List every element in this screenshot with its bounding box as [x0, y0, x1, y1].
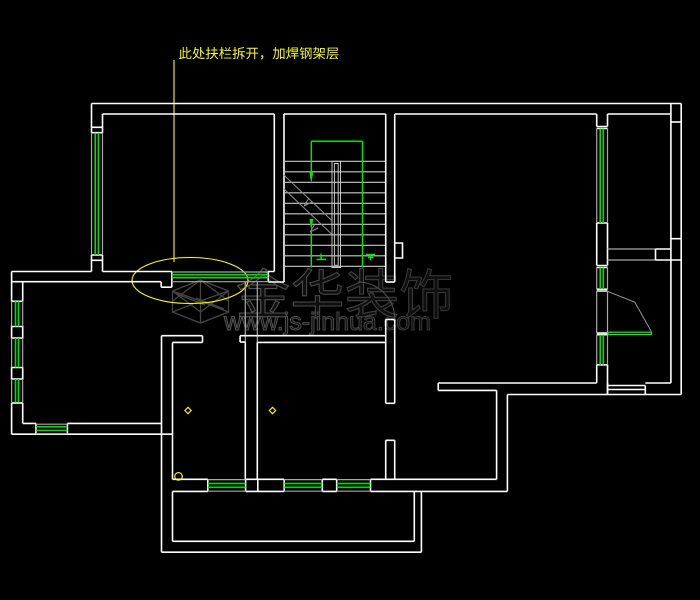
svg-text:www.js-jinhua.com: www.js-jinhua.com	[223, 308, 431, 336]
